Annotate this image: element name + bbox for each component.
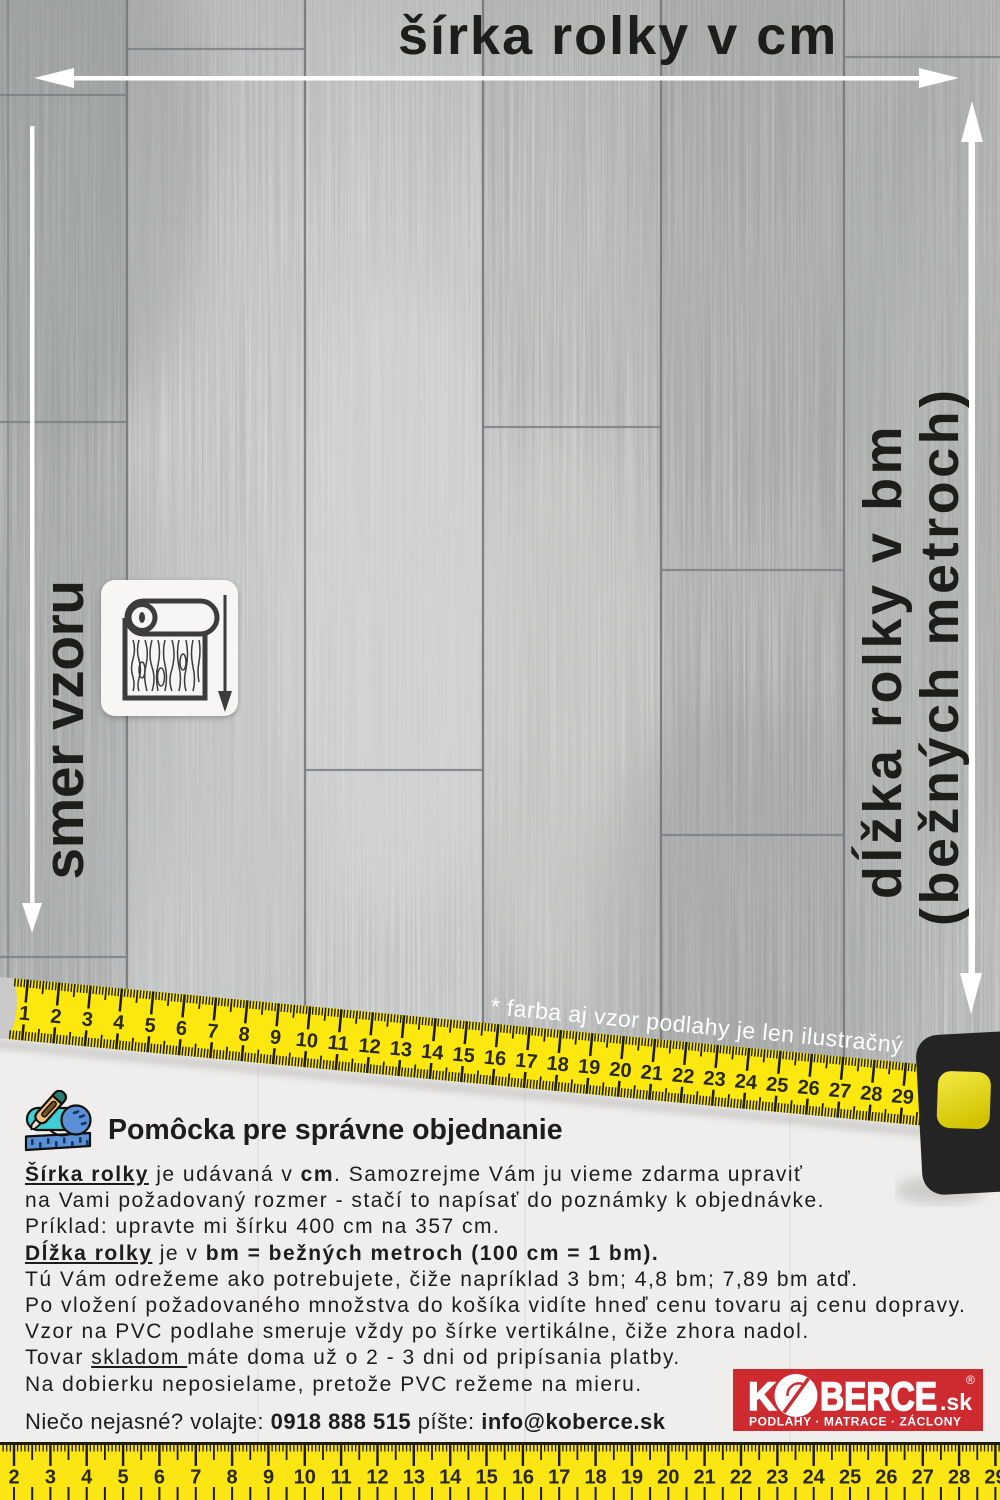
svg-text:17: 17 (548, 1467, 570, 1489)
svg-text:2: 2 (8, 1467, 19, 1489)
svg-text:12: 12 (357, 1035, 381, 1059)
svg-text:27: 27 (828, 1079, 852, 1103)
svg-text:22: 22 (671, 1064, 695, 1088)
svg-text:5: 5 (118, 1467, 129, 1489)
svg-text:22: 22 (730, 1467, 752, 1489)
svg-text:13: 13 (389, 1038, 413, 1062)
svg-text:16: 16 (483, 1047, 507, 1071)
svg-text:7: 7 (206, 1020, 219, 1043)
svg-text:17: 17 (514, 1050, 538, 1074)
svg-text:29: 29 (984, 1467, 1000, 1489)
svg-text:25: 25 (765, 1073, 789, 1097)
svg-text:24: 24 (734, 1070, 759, 1094)
svg-text:28: 28 (948, 1467, 970, 1489)
svg-text:14: 14 (439, 1467, 462, 1489)
svg-text:®: ® (966, 1373, 975, 1387)
svg-text:11: 11 (331, 1467, 352, 1489)
svg-text:21: 21 (640, 1061, 664, 1085)
svg-text:3: 3 (45, 1467, 56, 1489)
svg-text:5: 5 (143, 1014, 156, 1037)
svg-text:23: 23 (702, 1067, 726, 1091)
svg-text:.sk: .sk (940, 1389, 972, 1415)
svg-text:18: 18 (546, 1052, 570, 1076)
svg-text:14: 14 (420, 1041, 445, 1065)
svg-text:8: 8 (238, 1023, 251, 1046)
svg-text:1: 1 (18, 1003, 31, 1026)
svg-text:6: 6 (154, 1467, 165, 1489)
svg-text:10: 10 (294, 1467, 316, 1489)
svg-text:18: 18 (584, 1467, 606, 1489)
svg-text:13: 13 (403, 1467, 425, 1489)
svg-text:4: 4 (81, 1467, 93, 1489)
svg-text:16: 16 (512, 1467, 534, 1489)
svg-text:20: 20 (657, 1467, 679, 1489)
svg-text:25: 25 (839, 1467, 861, 1489)
svg-text:19: 19 (577, 1055, 601, 1079)
svg-text:27: 27 (912, 1467, 934, 1489)
svg-text:9: 9 (269, 1026, 282, 1049)
svg-text:6: 6 (175, 1017, 188, 1040)
svg-text:3: 3 (81, 1008, 94, 1031)
svg-text:15: 15 (452, 1044, 476, 1068)
svg-text:19: 19 (621, 1467, 643, 1489)
svg-text:8: 8 (227, 1467, 238, 1489)
svg-text:10: 10 (295, 1029, 319, 1053)
svg-text:15: 15 (475, 1467, 497, 1489)
svg-text:26: 26 (875, 1467, 897, 1489)
svg-text:2: 2 (49, 1005, 62, 1028)
svg-text:24: 24 (803, 1467, 826, 1489)
svg-text:12: 12 (366, 1467, 388, 1489)
svg-text:26: 26 (797, 1076, 821, 1100)
svg-text:23: 23 (766, 1467, 788, 1489)
svg-text:28: 28 (859, 1082, 883, 1106)
svg-text:7: 7 (190, 1467, 201, 1489)
svg-text:21: 21 (693, 1467, 715, 1489)
svg-text:9: 9 (263, 1467, 274, 1489)
svg-text:PODLAHY · MATRACE · ZÁCLONY: PODLAHY · MATRACE · ZÁCLONY (749, 1414, 961, 1429)
svg-text:11: 11 (327, 1032, 350, 1056)
svg-text:20: 20 (608, 1058, 632, 1082)
svg-text:K: K (748, 1375, 776, 1419)
svg-text:BERCE: BERCE (820, 1375, 937, 1419)
